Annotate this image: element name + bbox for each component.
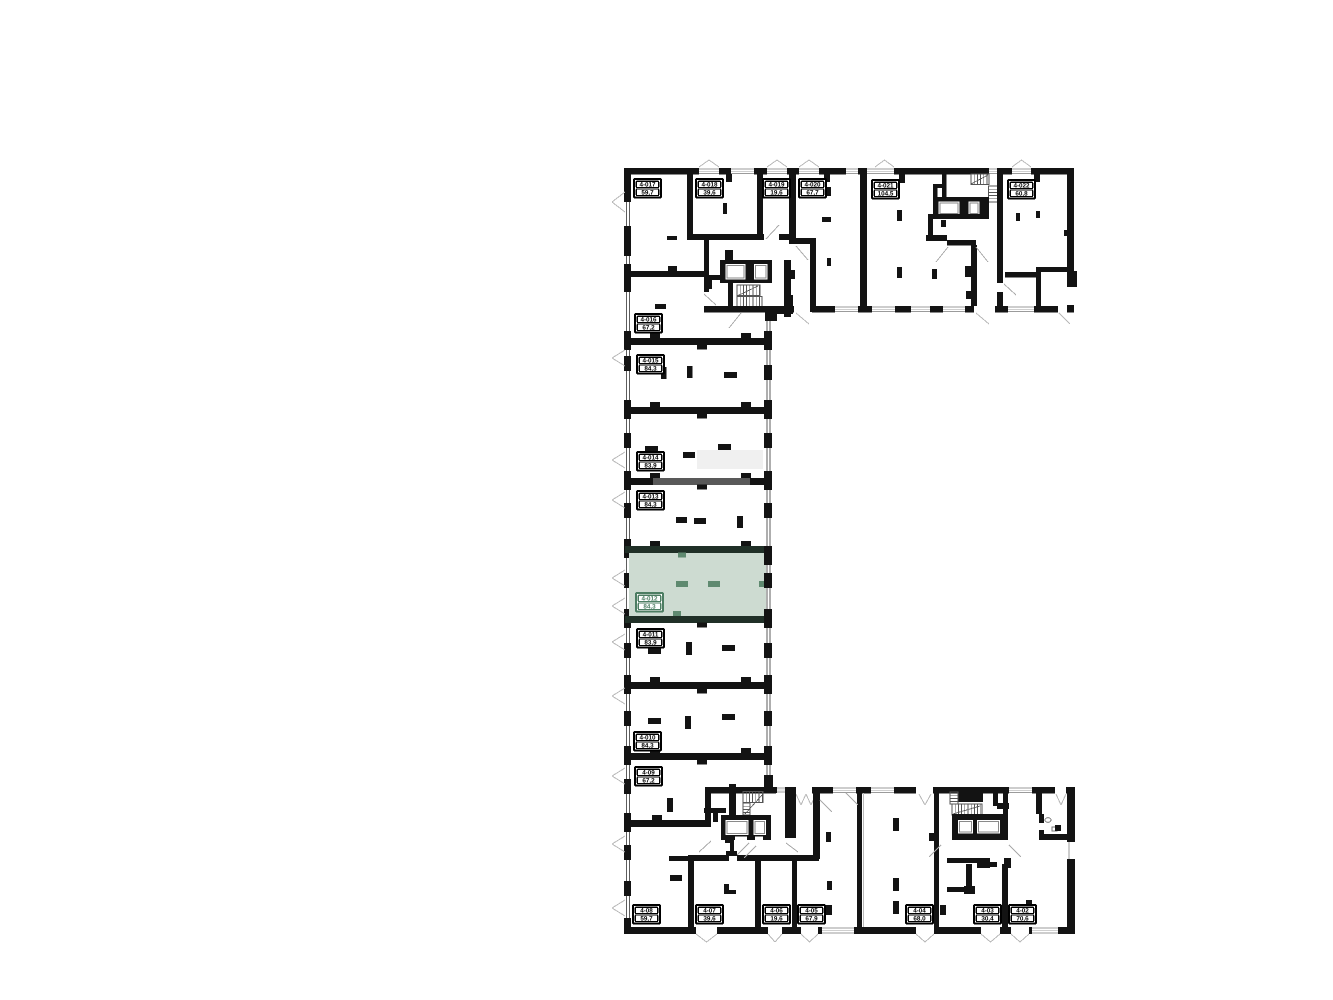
svg-text:4-03: 4-03 bbox=[981, 908, 994, 915]
svg-text:4-020: 4-020 bbox=[804, 182, 821, 189]
svg-text:104,5: 104,5 bbox=[878, 191, 894, 198]
svg-text:84,3: 84,3 bbox=[643, 604, 656, 611]
svg-text:19,6: 19,6 bbox=[770, 916, 783, 923]
svg-text:19,6: 19,6 bbox=[770, 190, 783, 197]
svg-text:4-05: 4-05 bbox=[805, 908, 818, 915]
svg-text:4-04: 4-04 bbox=[913, 908, 926, 915]
svg-text:70,6: 70,6 bbox=[1016, 916, 1029, 923]
svg-text:4-012: 4-012 bbox=[641, 596, 658, 603]
svg-text:4-07: 4-07 bbox=[703, 908, 716, 915]
svg-text:83,9: 83,9 bbox=[644, 640, 657, 647]
svg-text:59,7: 59,7 bbox=[640, 916, 653, 923]
svg-text:4-02: 4-02 bbox=[1016, 908, 1029, 915]
svg-text:4-016: 4-016 bbox=[640, 317, 657, 324]
svg-text:4-014: 4-014 bbox=[642, 455, 659, 462]
svg-text:4-011: 4-011 bbox=[643, 632, 659, 639]
svg-text:60,8: 60,8 bbox=[1015, 191, 1028, 198]
svg-text:4-019: 4-019 bbox=[768, 182, 785, 189]
svg-text:67,2: 67,2 bbox=[642, 325, 655, 332]
svg-text:4-015: 4-015 bbox=[642, 358, 659, 365]
svg-text:4-08: 4-08 bbox=[640, 908, 653, 915]
svg-text:67,9: 67,9 bbox=[805, 916, 818, 923]
svg-text:4-022: 4-022 bbox=[1013, 183, 1030, 190]
svg-text:59,7: 59,7 bbox=[641, 190, 654, 197]
svg-text:67,2: 67,2 bbox=[642, 778, 655, 785]
svg-text:83,9: 83,9 bbox=[644, 463, 657, 470]
svg-text:39,6: 39,6 bbox=[703, 190, 716, 197]
svg-text:4-09: 4-09 bbox=[642, 770, 655, 777]
svg-text:67,7: 67,7 bbox=[806, 190, 819, 197]
svg-text:4-018: 4-018 bbox=[701, 182, 718, 189]
svg-text:4-013: 4-013 bbox=[642, 494, 659, 501]
svg-text:4-021: 4-021 bbox=[877, 183, 894, 190]
svg-text:84,3: 84,3 bbox=[644, 502, 657, 509]
svg-text:84,3: 84,3 bbox=[641, 743, 654, 750]
svg-text:4-017: 4-017 bbox=[639, 182, 656, 189]
svg-text:84,3: 84,3 bbox=[644, 366, 657, 373]
svg-text:4-010: 4-010 bbox=[639, 735, 656, 742]
svg-text:39,6: 39,6 bbox=[703, 916, 716, 923]
svg-text:68,0: 68,0 bbox=[913, 916, 926, 923]
svg-text:4-06: 4-06 bbox=[770, 908, 783, 915]
svg-text:30,4: 30,4 bbox=[981, 916, 994, 923]
